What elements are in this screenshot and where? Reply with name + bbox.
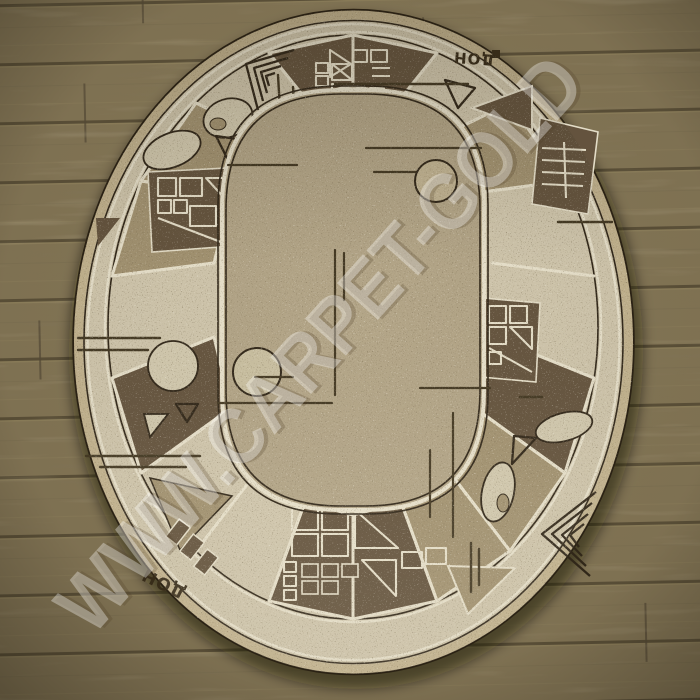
- photo-canvas: ДОН ДОН: [0, 0, 700, 700]
- carpet-product-photo: ДОН ДОН: [0, 0, 700, 700]
